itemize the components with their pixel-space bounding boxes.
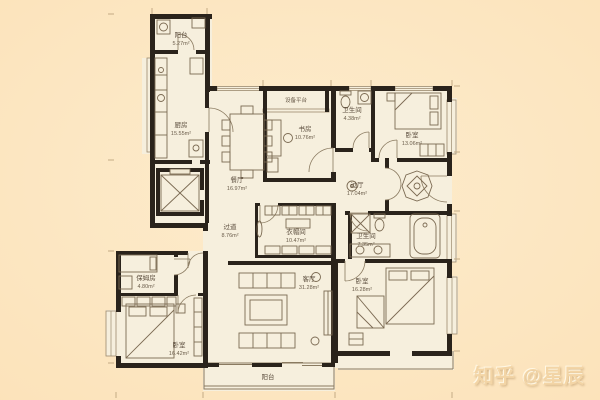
room-label: 阳台	[262, 372, 275, 381]
room-label: 阳台	[175, 30, 188, 39]
room-area: 13.06m²	[402, 141, 422, 147]
room-label: 过厅	[351, 180, 365, 189]
room-label: 厨房	[175, 120, 188, 129]
room-label: 书房	[299, 124, 312, 133]
floor-plan: 阳台 5.27m² 厨房 15.55m² 设备平台 书房 10.76m² 卫生间…	[0, 0, 600, 400]
room-area: 4.80m²	[137, 284, 154, 290]
room-area: 8.76m²	[221, 233, 238, 239]
room-label: 过道	[224, 222, 238, 231]
room-area: 4.38m²	[343, 116, 360, 122]
room-area: 15.55m²	[171, 131, 191, 137]
room-area: 7.35m²	[357, 242, 374, 248]
room-label: 卧室	[356, 276, 370, 285]
room-area: 10.47m²	[286, 238, 306, 244]
floor-plan-image: 阳台 5.27m² 厨房 15.55m² 设备平台 书房 10.76m² 卫生间…	[0, 0, 600, 400]
room-area: 16.42m²	[169, 351, 189, 357]
room-label: 客厅	[303, 274, 317, 283]
room-label: 设备平台	[285, 96, 308, 104]
room-label: 保姆房	[136, 273, 156, 282]
room-label: 卧室	[406, 130, 420, 139]
room-area: 17.04m²	[347, 191, 367, 197]
room-label: 餐厅	[231, 175, 245, 184]
room-label: 卫生间	[342, 105, 362, 114]
room-area: 16.28m²	[352, 287, 372, 293]
room-area: 10.76m²	[295, 135, 315, 141]
room-area: 5.27m²	[172, 41, 189, 47]
room-label: 衣帽间	[286, 227, 306, 236]
room-label: 卫生间	[356, 231, 376, 240]
watermark: 知乎 @星辰	[474, 360, 600, 389]
room-label: 卧室	[173, 340, 187, 349]
room-area: 31.28m²	[299, 285, 319, 291]
room-area: 16.97m²	[227, 186, 247, 192]
